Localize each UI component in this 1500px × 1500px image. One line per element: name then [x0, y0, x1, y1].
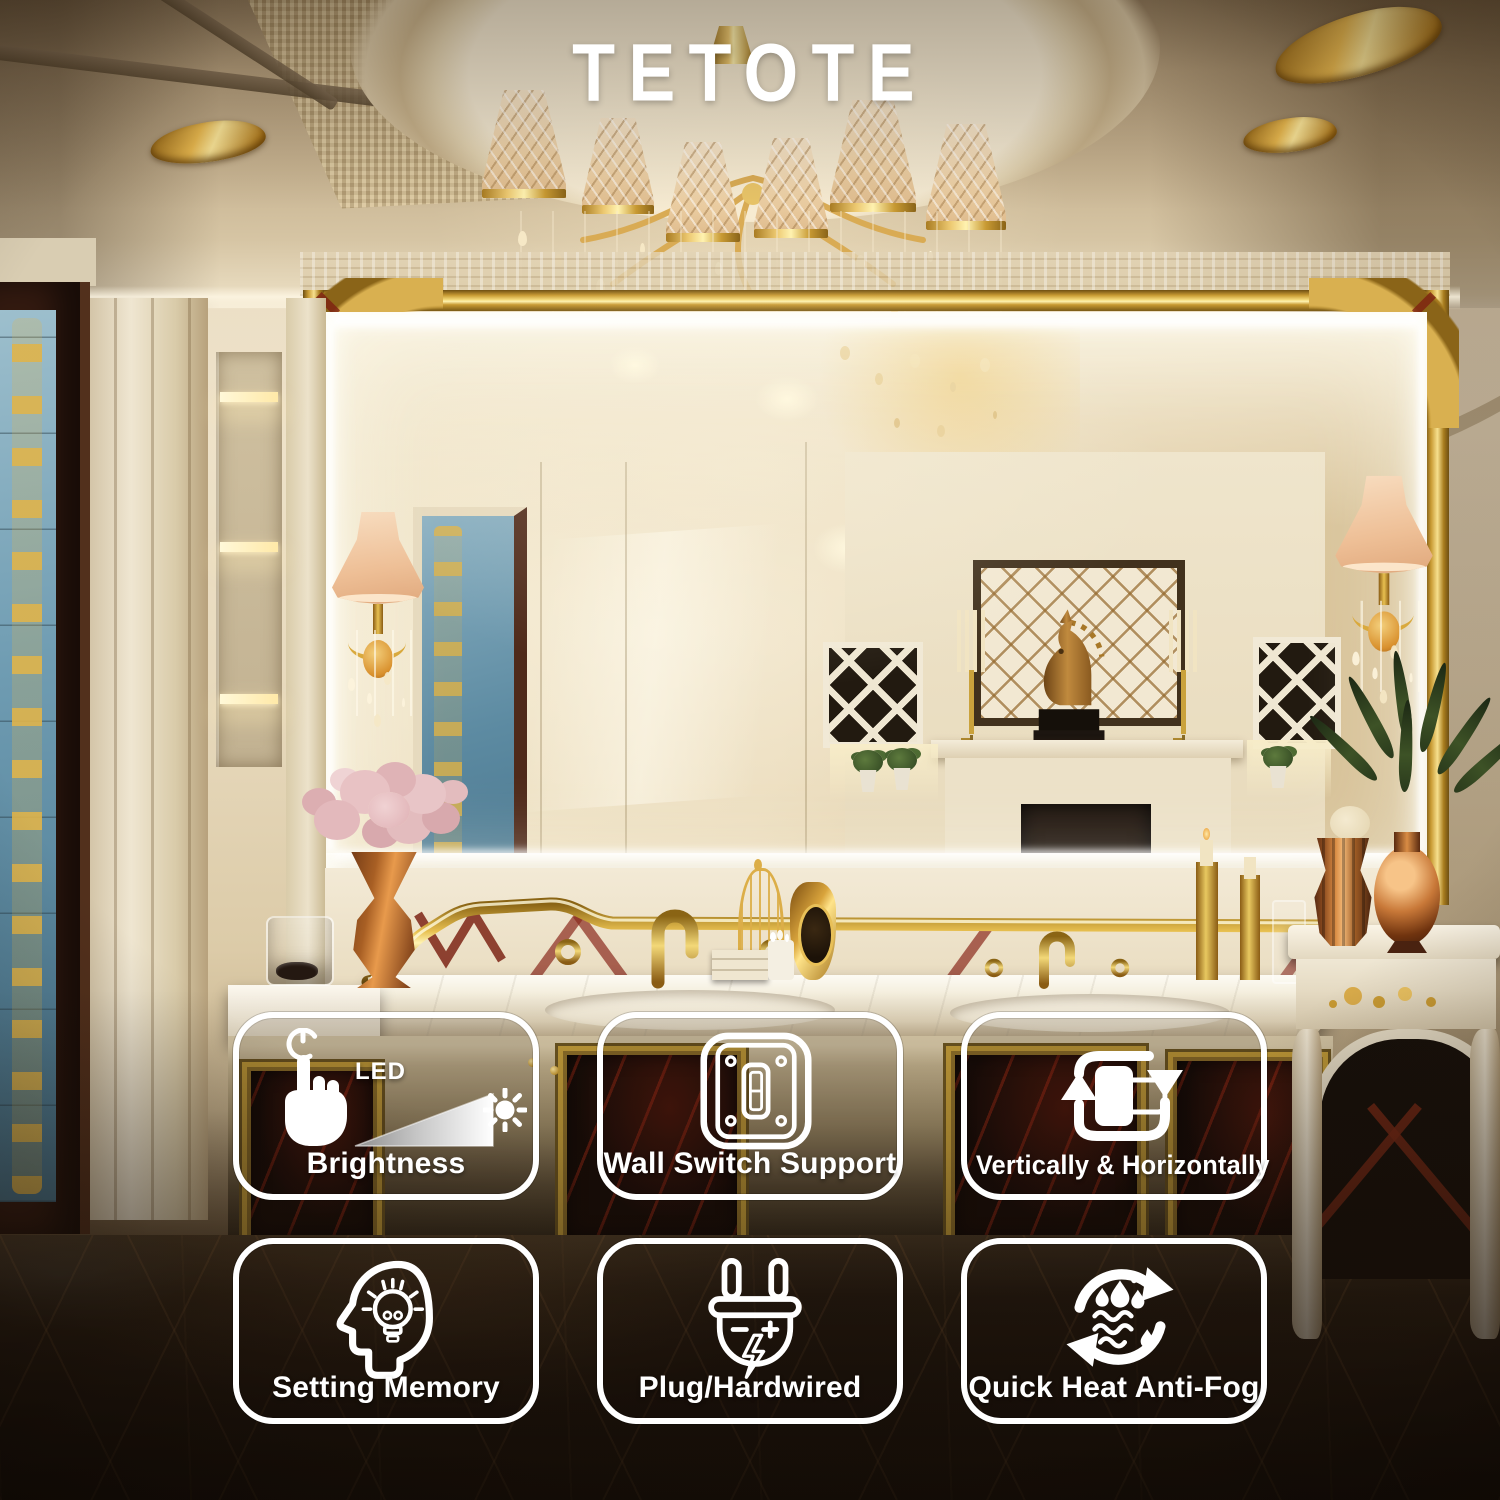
brightness-gradient-wedge: [353, 1092, 495, 1150]
lit-shelf: [220, 392, 278, 402]
feature-label: Setting Memory: [239, 1371, 533, 1405]
led-label: LED: [355, 1058, 406, 1086]
stained-glass-panel: [0, 310, 56, 1202]
console-leg: [1470, 1029, 1500, 1339]
led-strip-bottom: [333, 850, 1419, 859]
wall-switch-icon: [700, 1032, 812, 1150]
feature-badge-wall-switch: Wall Switch Support: [597, 1012, 903, 1200]
console-apron: [1296, 959, 1496, 1029]
crystal-drops: [518, 231, 527, 246]
gold-candle-holder: [1240, 875, 1260, 980]
warm-light-glow: [330, 250, 1170, 690]
glass-jar: [266, 916, 334, 986]
feature-badge-memory: Setting Memory: [233, 1238, 539, 1424]
marble-pilaster: [78, 298, 208, 1220]
lit-shelf: [220, 694, 278, 704]
feature-label: Plug/Hardwired: [603, 1371, 897, 1405]
feature-label: Vertically & Horizontally: [976, 1150, 1252, 1181]
cream-flower-bouquet: [1330, 806, 1370, 840]
door-lintel: [0, 238, 96, 286]
sconce-crystals: [1344, 601, 1425, 692]
memory-head-icon: [323, 1252, 459, 1386]
feature-badge-orientation: Vertically & Horizontally: [961, 1012, 1267, 1200]
display-niche: [216, 352, 282, 767]
feature-label: Brightness: [239, 1147, 533, 1181]
feature-label: Wall Switch Support: [603, 1147, 897, 1181]
lit-shelf: [220, 542, 278, 552]
pink-flower-bouquet: [368, 792, 410, 828]
sconce-crystals: [340, 630, 416, 716]
feature-badge-power: Plug/Hardwired: [597, 1238, 903, 1424]
wall-sconce: [1331, 476, 1437, 699]
gold-vanity-rail: [360, 876, 1335, 991]
sconce-shade: [1335, 476, 1433, 574]
feature-badge-grid: LED Brightness: [233, 1012, 1267, 1424]
feature-badge-antifog: Quick Heat Anti-Fog: [961, 1238, 1267, 1424]
gold-carving: [1344, 987, 1362, 1005]
copper-round-vase: [1374, 846, 1440, 945]
console-table: [1288, 925, 1500, 1395]
rotate-orientation-icon: [1043, 1036, 1197, 1154]
product-hero-image: TETOTE LED: [0, 0, 1500, 1500]
stacked-books: [712, 950, 768, 980]
touch-dimmer-icon: [257, 1028, 357, 1152]
feature-badge-brightness: LED Brightness: [233, 1012, 539, 1200]
floor-inlay-line: [1310, 1103, 1422, 1279]
brand-logo: TETOTE: [572, 26, 928, 120]
copper-fluted-vase: [1312, 838, 1374, 946]
sun-icon: [483, 1088, 527, 1132]
ceiling-gold-ornament: [148, 116, 268, 168]
stained-glass-door: [0, 282, 90, 1234]
feature-label: Quick Heat Anti-Fog: [967, 1371, 1261, 1405]
gold-faucet: [978, 912, 1138, 990]
anti-fog-icon: [1059, 1256, 1181, 1378]
gold-candle-holder: [1196, 862, 1218, 980]
gold-flask-decor: [790, 882, 836, 980]
power-plug-icon: [693, 1256, 817, 1384]
swab-cup: [768, 940, 794, 980]
console-leg: [1292, 1029, 1322, 1339]
